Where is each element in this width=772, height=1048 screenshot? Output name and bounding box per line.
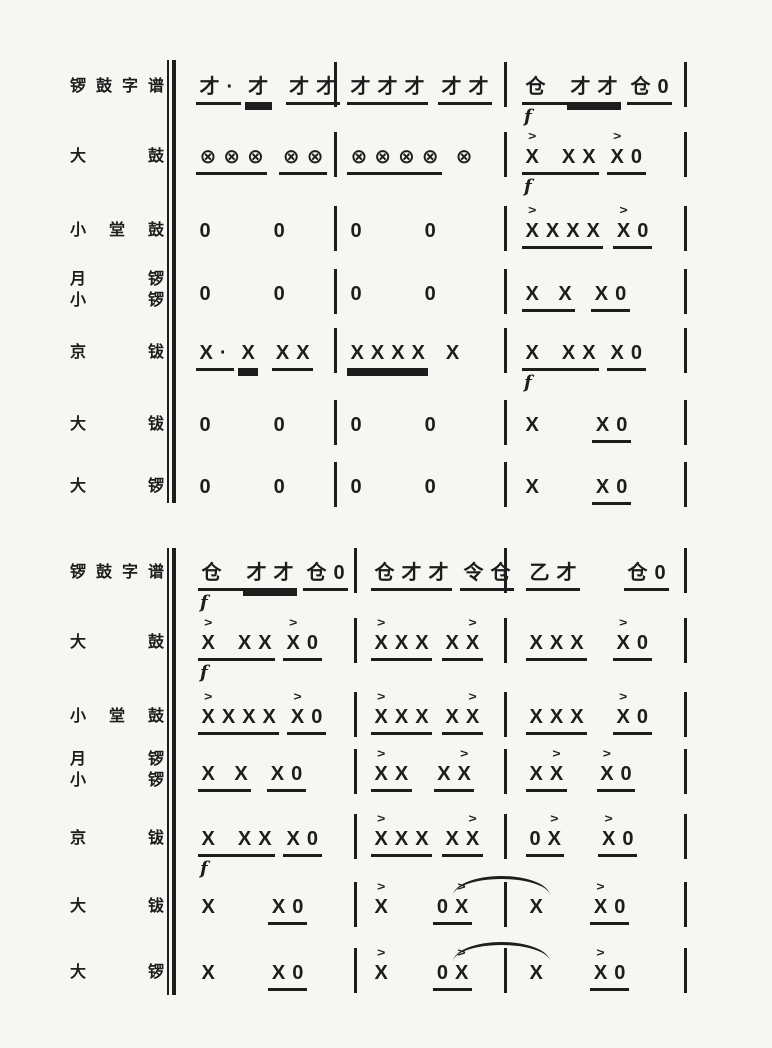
note-char: 仓 xyxy=(487,562,514,585)
note-group: XX> xyxy=(526,763,567,792)
accent-mark: > xyxy=(377,691,385,701)
note-char: X> xyxy=(198,632,218,655)
note-char: X xyxy=(198,896,218,919)
note-char: 0 xyxy=(611,962,629,985)
note-char: 才 xyxy=(553,562,580,585)
note-char: X xyxy=(526,706,546,729)
note-group: X0 xyxy=(268,896,306,925)
note-group: X>0 xyxy=(597,763,635,792)
accent-mark: > xyxy=(596,881,604,891)
instrument-label-text: 京钹 xyxy=(70,828,164,849)
final-barline xyxy=(684,749,687,794)
note-char: 0 xyxy=(433,896,451,919)
note-char: 0 xyxy=(433,962,451,985)
note-char: X> xyxy=(546,763,566,786)
note-group: X> xyxy=(198,632,234,661)
note-char: X> xyxy=(371,896,391,919)
score-row: 锣鼓字谱仓才才仓0f仓才才令仓乙才仓0 xyxy=(0,540,772,610)
measure: X>XXXX> xyxy=(371,632,483,661)
score-row: 京钹XXXX0fX>XXXX>0X>X>0 xyxy=(0,806,772,876)
note-char: X xyxy=(231,763,251,786)
note-char: X> xyxy=(283,632,303,655)
note-char: X xyxy=(567,706,587,729)
note-group: X>XXX xyxy=(198,706,279,735)
note-group: XX> xyxy=(434,763,475,792)
note-char: X xyxy=(434,763,454,786)
note-char: X xyxy=(546,706,566,729)
note-group: X xyxy=(198,896,218,919)
note-group: X>XX xyxy=(371,632,432,661)
note-group: X xyxy=(198,962,218,985)
note-char: X xyxy=(259,706,279,729)
note-char: X xyxy=(268,962,288,985)
note-char: X xyxy=(442,828,462,851)
note-group: X>XX xyxy=(371,706,432,735)
note-group: X>0 xyxy=(613,706,651,735)
note-char: 0 xyxy=(651,562,669,585)
accent-mark: > xyxy=(603,748,611,758)
note-char: X xyxy=(412,632,432,655)
barline xyxy=(504,692,507,737)
note-char: X> xyxy=(462,828,482,851)
note-char: X> xyxy=(451,896,471,919)
note-char: X xyxy=(234,632,254,655)
instrument-label-text: 大钹 xyxy=(70,896,164,917)
barline xyxy=(504,618,507,663)
note-char: 0 xyxy=(611,896,629,919)
accent-mark: > xyxy=(377,813,385,823)
barline xyxy=(504,948,507,993)
note-group: XX> xyxy=(442,706,483,735)
measure: X>0X> xyxy=(371,896,472,925)
instrument-label: 大鼓 xyxy=(70,632,164,653)
score-row: 大鼓X>XXX>0fX>XXXX>XXXX>0 xyxy=(0,610,772,680)
instrument-label: 京钹 xyxy=(70,828,164,849)
accent-mark: > xyxy=(204,691,212,701)
note-char: X> xyxy=(371,706,391,729)
note-char xyxy=(218,763,231,786)
barline xyxy=(504,749,507,794)
note-char: 令 xyxy=(460,562,487,585)
barline xyxy=(354,948,357,993)
note-char: 才 xyxy=(243,562,270,585)
note-char: 才 xyxy=(425,562,452,585)
note-char: X> xyxy=(371,962,391,985)
barline xyxy=(504,814,507,859)
final-barline xyxy=(684,548,687,593)
barline xyxy=(354,882,357,927)
accent-mark: > xyxy=(377,748,385,758)
note-char: 仓 xyxy=(198,562,225,585)
note-char: X xyxy=(412,706,432,729)
note-char: X xyxy=(283,828,303,851)
note-char: X xyxy=(567,632,587,655)
note-char: 0 xyxy=(526,828,544,851)
score-row: 大锣XX0X>0X>XX>0 xyxy=(0,940,772,1010)
note-char: X xyxy=(267,763,287,786)
instrument-label-text: 大鼓 xyxy=(70,632,164,653)
note-char: X> xyxy=(613,632,633,655)
note-group: X0 xyxy=(283,828,321,857)
note-char: X xyxy=(526,632,546,655)
note-char: 0 xyxy=(303,828,321,851)
note-group: X>0 xyxy=(613,632,651,661)
measure: XX>0 xyxy=(526,962,629,991)
accent-mark: > xyxy=(619,691,627,701)
note-char: X xyxy=(442,706,462,729)
note-char: 0 xyxy=(288,763,306,786)
note-group: XXX xyxy=(526,632,587,661)
accent-mark: > xyxy=(289,617,297,627)
barline xyxy=(354,618,357,663)
measure: XX0 xyxy=(198,896,307,925)
barline xyxy=(504,548,507,593)
note-char: X xyxy=(442,632,462,655)
note-char: X xyxy=(412,828,432,851)
note-char: 0 xyxy=(289,962,307,985)
note-char: X> xyxy=(462,706,482,729)
note-group: 0X> xyxy=(433,896,471,925)
note-group: X xyxy=(198,828,234,857)
note-group: X>0 xyxy=(590,962,628,991)
note-group: 0X> xyxy=(526,828,564,857)
instrument-label-text: 大锣 xyxy=(70,962,164,983)
note-char: 乙 xyxy=(526,562,553,585)
instrument-label-text: 锣鼓字谱 xyxy=(70,562,164,583)
note-char: 仓 xyxy=(624,562,651,585)
measure: XXXX>0 xyxy=(526,632,652,661)
accent-mark: > xyxy=(377,947,385,957)
accent-mark: > xyxy=(468,691,476,701)
note-char: X xyxy=(546,632,566,655)
measure: X>XXXX> xyxy=(371,706,483,735)
note-group: X0 xyxy=(268,962,306,991)
note-group: X X xyxy=(198,763,251,792)
instrument-label: 小堂鼓 xyxy=(70,706,164,727)
system-2: 锣鼓字谱仓才才仓0f仓才才令仓乙才仓0大鼓X>XXX>0fX>XXXX>XXXX… xyxy=(0,0,772,1048)
note-char: X> xyxy=(597,763,617,786)
note-group: X>X xyxy=(371,763,412,792)
measure: X XX0 xyxy=(198,763,306,792)
note-group: X>0 xyxy=(598,828,636,857)
score-page: 锣鼓字谱才·才才才才才才才才仓才才仓0f大鼓⊗⊗⊗⊗⊗⊗⊗⊗⊗⊗X>XXX>0f… xyxy=(0,0,772,1048)
instrument-label: 大钹 xyxy=(70,896,164,917)
measure: XXXX0f xyxy=(198,828,322,857)
barline xyxy=(354,749,357,794)
final-barline xyxy=(684,882,687,927)
accent-mark: > xyxy=(377,881,385,891)
note-char: X> xyxy=(590,962,610,985)
note-char: X> xyxy=(371,632,391,655)
note-group: XX> xyxy=(442,828,483,857)
accent-mark: > xyxy=(468,617,476,627)
measure: XX>X>0 xyxy=(526,763,635,792)
final-barline xyxy=(684,692,687,737)
note-char: X xyxy=(218,706,238,729)
accent-mark: > xyxy=(596,947,604,957)
barline xyxy=(504,882,507,927)
instrument-label-text: 小锣 xyxy=(70,770,164,791)
note-char: X> xyxy=(590,896,610,919)
accent-mark: > xyxy=(605,813,613,823)
accent-mark: > xyxy=(552,748,560,758)
note-char: 才 xyxy=(398,562,425,585)
note-char: X xyxy=(198,828,218,851)
barline xyxy=(354,814,357,859)
note-group: 仓才才 xyxy=(371,562,452,591)
note-group: 才才 xyxy=(243,562,297,591)
note-group: 仓 xyxy=(198,562,243,591)
note-char: X xyxy=(255,632,275,655)
measure: 乙才仓0 xyxy=(526,562,669,591)
note-char: X xyxy=(239,706,259,729)
accent-mark: > xyxy=(468,813,476,823)
accent-mark: > xyxy=(619,617,627,627)
note-group: 乙才 xyxy=(526,562,580,591)
measure: 仓才才仓0f xyxy=(198,562,348,591)
note-char: X xyxy=(198,962,218,985)
note-char: X> xyxy=(371,763,391,786)
instrument-label-text: 月锣 xyxy=(70,749,164,770)
note-char: X> xyxy=(287,706,307,729)
note-group: XX xyxy=(234,828,275,857)
note-char: X xyxy=(391,632,411,655)
instrument-label-text: 小堂鼓 xyxy=(70,706,164,727)
note-char: 才 xyxy=(270,562,297,585)
note-group: X xyxy=(526,896,546,919)
measure: XX0 xyxy=(198,962,307,991)
barline xyxy=(354,692,357,737)
note-char: X xyxy=(198,763,218,786)
note-char: X> xyxy=(613,706,633,729)
note-char: X> xyxy=(198,706,218,729)
note-char: 0 xyxy=(619,828,637,851)
note-group: X>0 xyxy=(287,706,325,735)
note-char: 仓 xyxy=(371,562,398,585)
note-group: X>0 xyxy=(283,632,321,661)
tie-arc xyxy=(453,942,550,962)
accent-mark: > xyxy=(460,748,468,758)
note-char: X> xyxy=(451,962,471,985)
barline xyxy=(354,548,357,593)
note-char: 0 xyxy=(289,896,307,919)
score-row: 月锣小锣X XX0X>XXX>XX>X>0 xyxy=(0,741,772,811)
note-char: 0 xyxy=(330,562,348,585)
note-char: X xyxy=(234,828,254,851)
note-char: 0 xyxy=(303,632,321,655)
note-char: X> xyxy=(371,828,391,851)
measure: X>XXXX>0 xyxy=(198,706,326,735)
measure: XXXX>0 xyxy=(526,706,652,735)
note-group: X0 xyxy=(267,763,305,792)
note-char: 0 xyxy=(633,632,651,655)
note-char: X xyxy=(391,706,411,729)
note-char: X xyxy=(255,828,275,851)
instrument-label: 锣鼓字谱 xyxy=(70,562,164,583)
note-char: 仓 xyxy=(303,562,330,585)
tie-arc xyxy=(453,876,550,896)
note-group: X>0 xyxy=(590,896,628,925)
note-char: X xyxy=(391,763,411,786)
measure: X>XXX>0f xyxy=(198,632,322,661)
note-group: XX> xyxy=(442,632,483,661)
note-char: X> xyxy=(454,763,474,786)
forte-mark: f xyxy=(200,665,208,681)
note-char: 0 xyxy=(308,706,326,729)
measure: X>XXXX> xyxy=(371,828,483,857)
note-char: 0 xyxy=(617,763,635,786)
note-char: X> xyxy=(598,828,618,851)
accent-mark: > xyxy=(293,691,301,701)
final-barline xyxy=(684,814,687,859)
accent-mark: > xyxy=(204,617,212,627)
measure: X>0X> xyxy=(371,962,472,991)
note-group: X>XX xyxy=(371,828,432,857)
note-char: X xyxy=(268,896,288,919)
accent-mark: > xyxy=(377,617,385,627)
score-row: 大钹XX0X>0X>XX>0 xyxy=(0,874,772,944)
note-group: 0X> xyxy=(433,962,471,991)
note-char: X xyxy=(391,828,411,851)
note-char: X xyxy=(526,763,546,786)
note-char: X xyxy=(526,896,546,919)
note-group: X> xyxy=(371,962,391,985)
note-group: 仓0 xyxy=(303,562,348,591)
measure: 仓才才令仓 xyxy=(371,562,514,591)
note-group: X xyxy=(526,962,546,985)
note-group: X> xyxy=(371,896,391,919)
note-char: 0 xyxy=(633,706,651,729)
final-barline xyxy=(684,948,687,993)
instrument-label: 大锣 xyxy=(70,962,164,983)
note-group: XX xyxy=(234,632,275,661)
forte-mark: f xyxy=(200,595,208,611)
measure: X>XXX> xyxy=(371,763,474,792)
instrument-label: 月锣小锣 xyxy=(70,749,164,791)
note-group: 仓0 xyxy=(624,562,669,591)
note-char: X xyxy=(526,962,546,985)
note-group: XXX xyxy=(526,706,587,735)
note-char: X> xyxy=(462,632,482,655)
measure: 0X>X>0 xyxy=(526,828,637,857)
measure: XX>0 xyxy=(526,896,629,925)
accent-mark: > xyxy=(550,813,558,823)
note-char: X> xyxy=(544,828,564,851)
final-barline xyxy=(684,618,687,663)
